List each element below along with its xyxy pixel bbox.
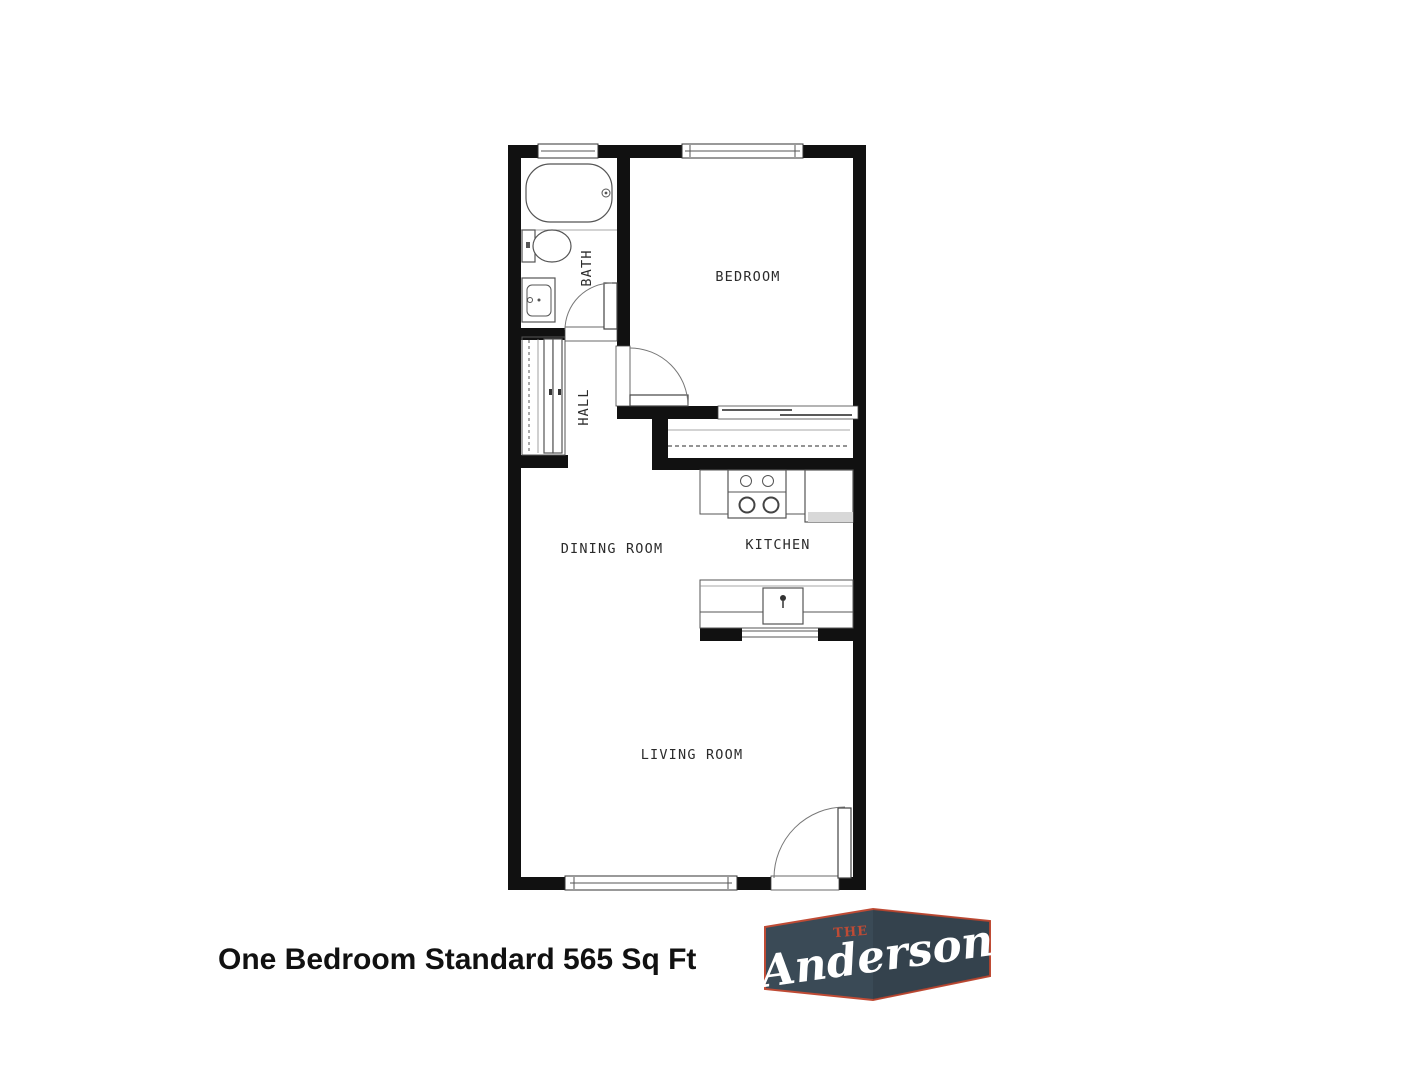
wall-kitchen-bottom-left	[700, 628, 742, 641]
wall-bedroom-bottom	[617, 406, 725, 419]
bedroom-closet-sliding-doors	[718, 406, 858, 419]
room-label-kitchen: KITCHEN	[745, 537, 810, 553]
bath-window	[538, 144, 598, 158]
wall-kitchen-bottom-right	[818, 628, 853, 641]
floor-plan-drawing: BEDROOM BATH HALL DINING ROOM KITCHEN LI…	[0, 0, 1410, 1080]
wall-left	[508, 145, 521, 890]
room-label-living-room: LIVING ROOM	[641, 747, 744, 763]
toilet	[522, 230, 571, 262]
room-label-bath: BATH	[579, 249, 595, 286]
stove	[728, 470, 786, 518]
floor-plan-page: BEDROOM BATH HALL DINING ROOM KITCHEN LI…	[0, 0, 1410, 1080]
bedroom-closet-strip	[668, 430, 850, 446]
wall-bath-bottom	[521, 328, 565, 340]
bath-door	[565, 283, 617, 341]
hall-closet	[522, 337, 565, 455]
bedroom-window	[682, 144, 803, 158]
kitchen-sink	[763, 588, 803, 624]
wall-kitchen-top	[652, 458, 853, 470]
kitchen-pass-through	[742, 631, 818, 637]
room-label-hall: HALL	[576, 388, 592, 425]
wall-bath-bedroom-divider	[617, 158, 630, 346]
room-label-bedroom: BEDROOM	[715, 269, 780, 285]
sink-vanity	[522, 278, 555, 322]
burner	[740, 498, 755, 513]
bedroom-door	[616, 346, 688, 406]
wall-hall-bottom	[508, 455, 568, 468]
anderson-logo: THE Anderson	[754, 909, 997, 1000]
wall-right	[853, 145, 866, 890]
living-room-window	[565, 876, 737, 890]
plan-caption: One Bedroom Standard 565 Sq Ft	[218, 943, 696, 976]
room-label-dining-room: DINING ROOM	[561, 541, 664, 557]
entry-door	[771, 807, 851, 890]
burner	[764, 498, 779, 513]
faucet-icon	[780, 595, 786, 601]
refrigerator	[805, 470, 853, 522]
bathtub	[521, 164, 617, 230]
